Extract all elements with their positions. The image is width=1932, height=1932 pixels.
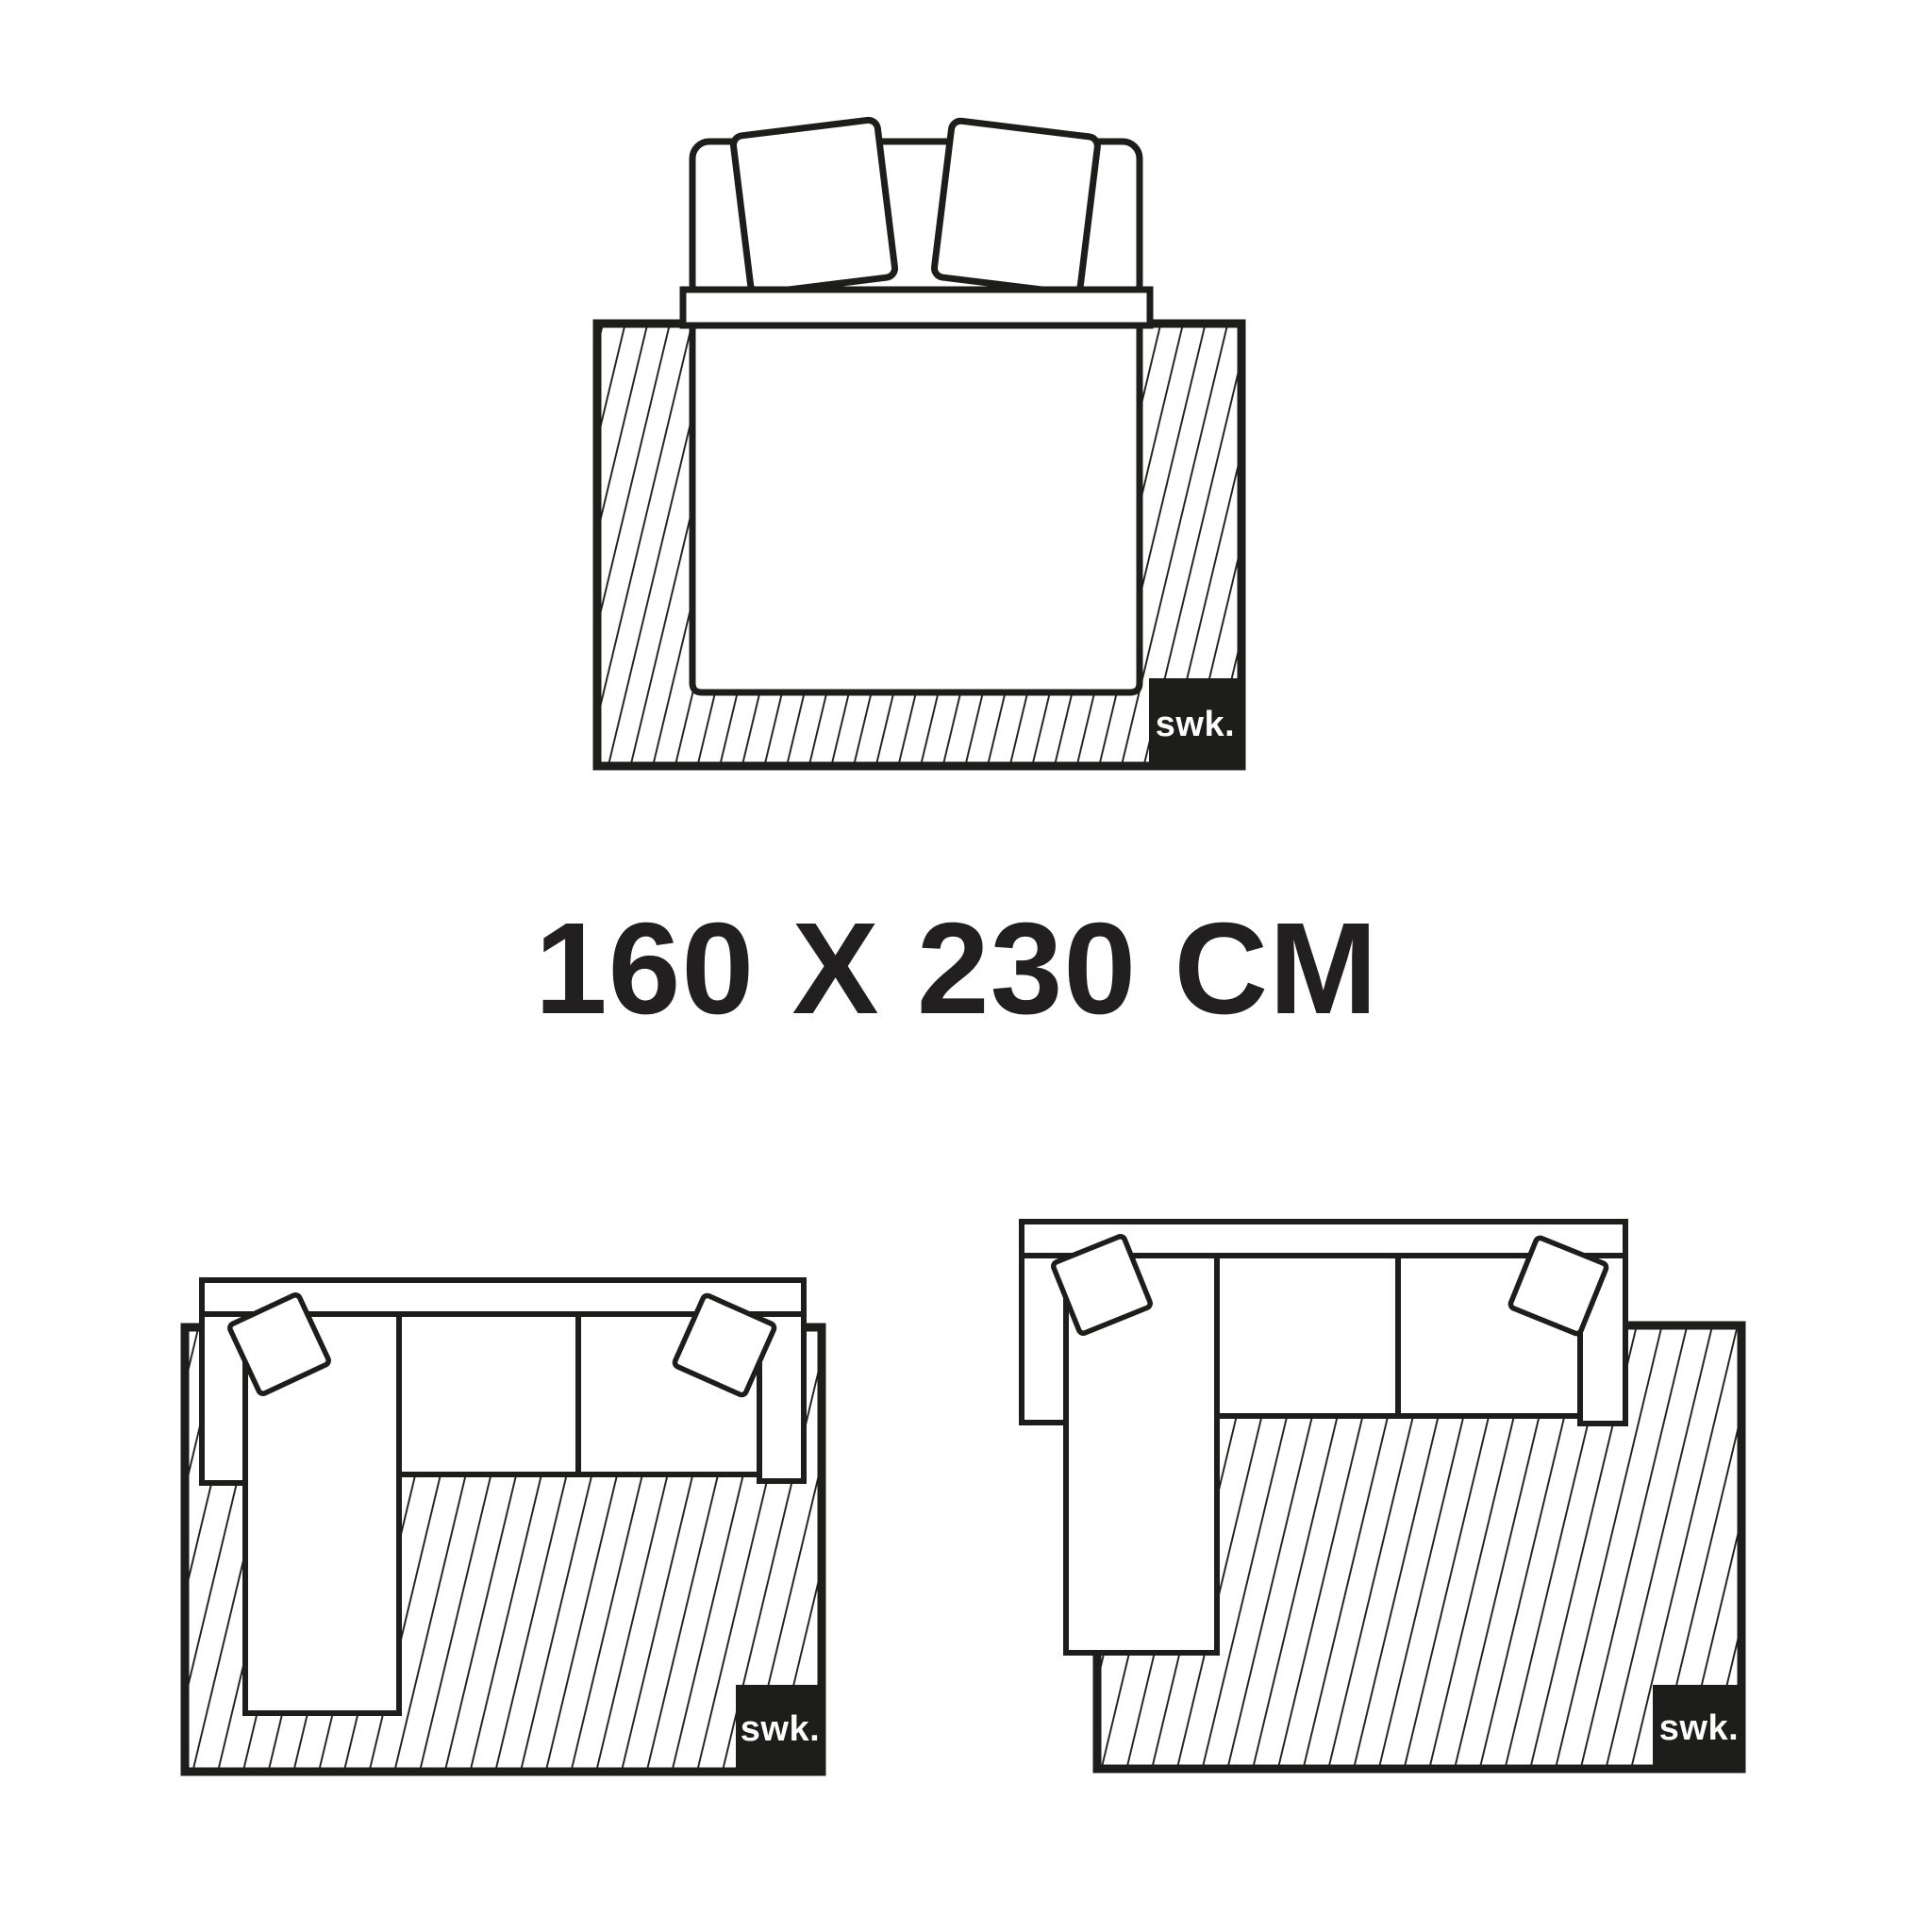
brand-logo-text: swk. [1156, 705, 1235, 744]
brand-logo-text: swk. [1659, 1708, 1739, 1748]
pillow-icon [732, 119, 895, 294]
bed-sheet-band [683, 290, 1150, 325]
bed-diagram: swk. [597, 119, 1241, 770]
pillow-icon [933, 120, 1098, 294]
rug-size-label: 160 X 230 CM [0, 904, 1923, 1034]
sofa-seat-cushion [399, 1314, 578, 1474]
bed-icon [683, 119, 1150, 692]
sofa-left-diagram: swk. [185, 1280, 825, 1775]
sofa-seat-cushion [1217, 1256, 1398, 1416]
infographic-canvas: swk. swk. [0, 0, 1932, 1932]
bed-duvet [692, 325, 1140, 692]
brand-logo-text: swk. [741, 1709, 820, 1749]
sofa-right-diagram: swk. [1022, 1222, 1745, 1773]
